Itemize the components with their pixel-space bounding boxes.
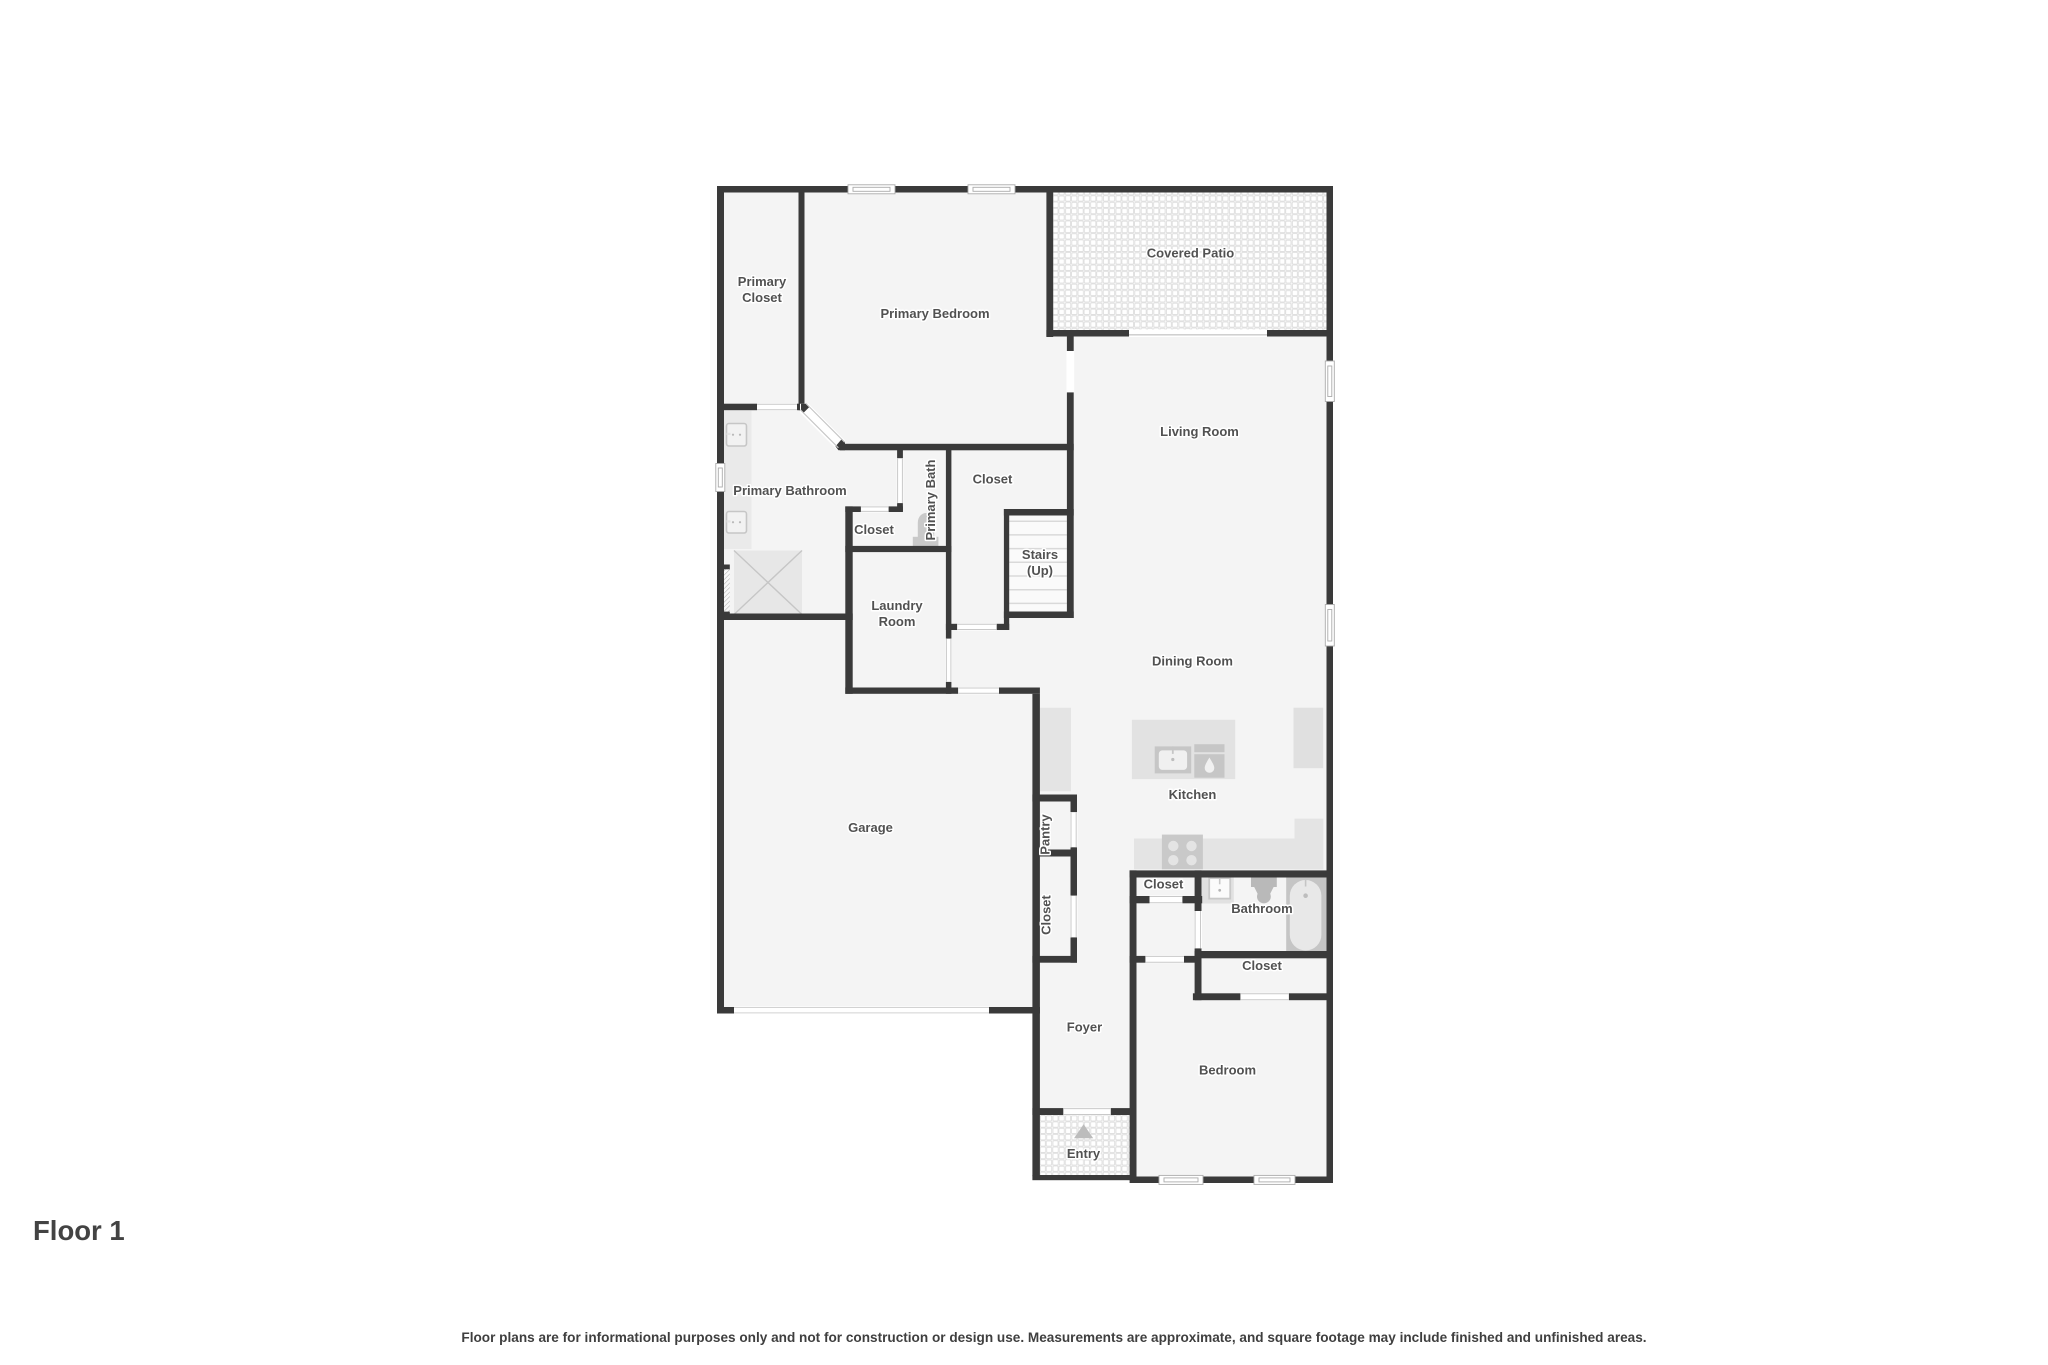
- svg-text:Entry: Entry: [1067, 1146, 1101, 1161]
- svg-text:Primary: Primary: [738, 274, 787, 289]
- svg-text:Primary Bedroom: Primary Bedroom: [880, 306, 989, 321]
- svg-text:Kitchen: Kitchen: [1169, 787, 1217, 802]
- svg-text:Closet: Closet: [854, 522, 894, 537]
- svg-text:Bedroom: Bedroom: [1199, 1063, 1256, 1078]
- svg-text:Closet: Closet: [1242, 958, 1282, 973]
- svg-text:Closet: Closet: [1039, 894, 1054, 934]
- svg-text:Floor 1: Floor 1: [33, 1215, 125, 1246]
- svg-text:Bathroom: Bathroom: [1231, 901, 1292, 916]
- svg-text:Pantry: Pantry: [1038, 814, 1053, 855]
- svg-text:Garage: Garage: [848, 820, 893, 835]
- svg-text:(Up): (Up): [1027, 563, 1053, 578]
- svg-text:Closet: Closet: [973, 472, 1013, 487]
- svg-text:Room: Room: [879, 614, 916, 629]
- svg-text:Primary Bath: Primary Bath: [923, 459, 938, 540]
- svg-text:Floor plans are for informatio: Floor plans are for informational purpos…: [461, 1330, 1646, 1345]
- svg-text:Stairs: Stairs: [1022, 547, 1058, 562]
- svg-text:Living Room: Living Room: [1160, 424, 1239, 439]
- svg-text:Primary Bathroom: Primary Bathroom: [733, 483, 846, 498]
- svg-text:Covered Patio: Covered Patio: [1147, 246, 1234, 261]
- svg-text:Laundry: Laundry: [871, 598, 923, 613]
- svg-text:Dining Room: Dining Room: [1152, 654, 1233, 669]
- svg-text:Closet: Closet: [1144, 877, 1184, 892]
- svg-text:Foyer: Foyer: [1067, 1020, 1102, 1035]
- svg-text:Closet: Closet: [742, 290, 782, 305]
